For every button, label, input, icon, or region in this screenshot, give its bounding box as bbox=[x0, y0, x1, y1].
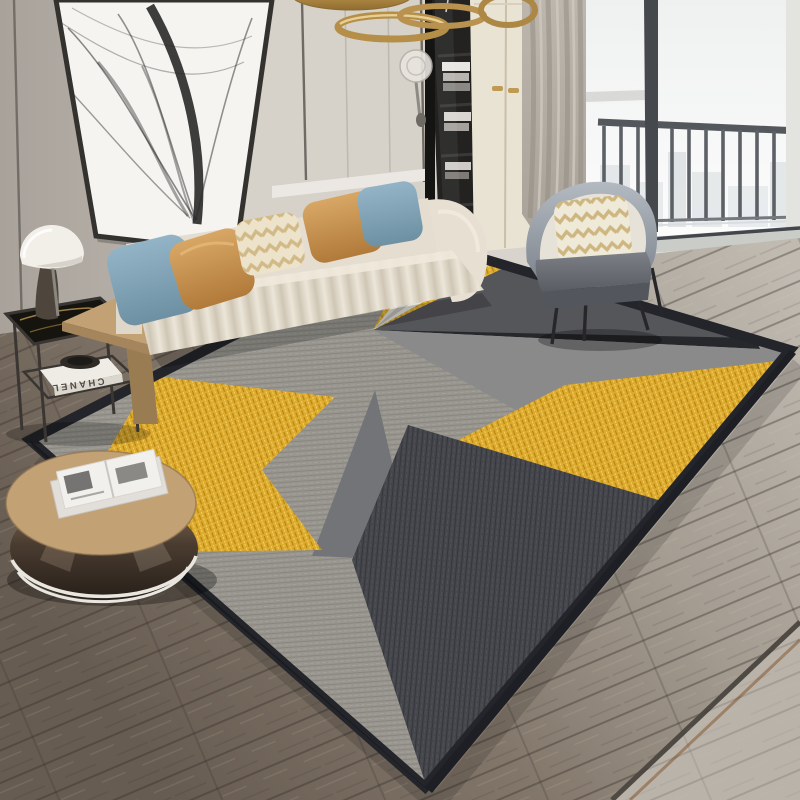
pillow-blue bbox=[355, 179, 425, 249]
living-room-photo: CHANEL bbox=[0, 0, 800, 800]
scene-canvas: CHANEL bbox=[0, 0, 800, 800]
sconce-globe bbox=[400, 50, 432, 82]
armchair-shadow bbox=[538, 329, 662, 351]
